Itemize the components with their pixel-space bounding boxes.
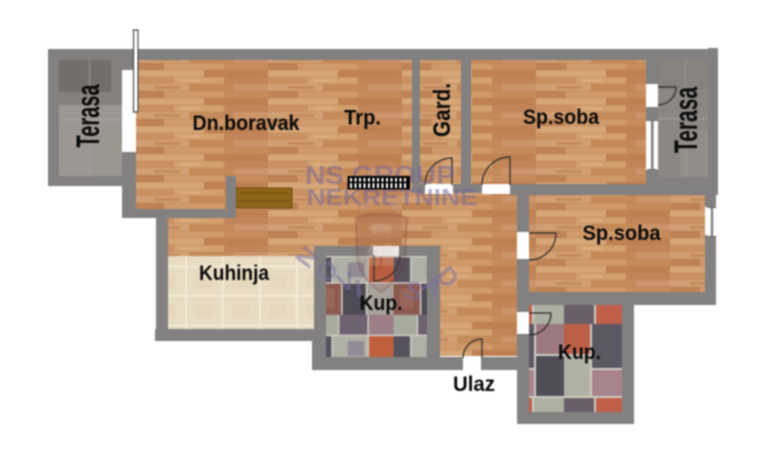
- svg-text:Dn.boravak: Dn.boravak: [193, 111, 300, 135]
- svg-text:Gard.: Gard.: [429, 83, 456, 137]
- svg-text:Sp.soba: Sp.soba: [583, 221, 662, 245]
- svg-text:Trp.: Trp.: [344, 106, 381, 130]
- svg-text:Terasa: Terasa: [70, 84, 106, 147]
- svg-text:Kup.: Kup.: [360, 291, 403, 315]
- svg-text:Terasa: Terasa: [668, 87, 704, 153]
- svg-text:Kup.: Kup.: [558, 340, 601, 364]
- svg-text:Ulaz: Ulaz: [453, 372, 495, 396]
- svg-text:Kuhinja: Kuhinja: [199, 261, 270, 285]
- svg-text:Sp.soba: Sp.soba: [523, 105, 600, 129]
